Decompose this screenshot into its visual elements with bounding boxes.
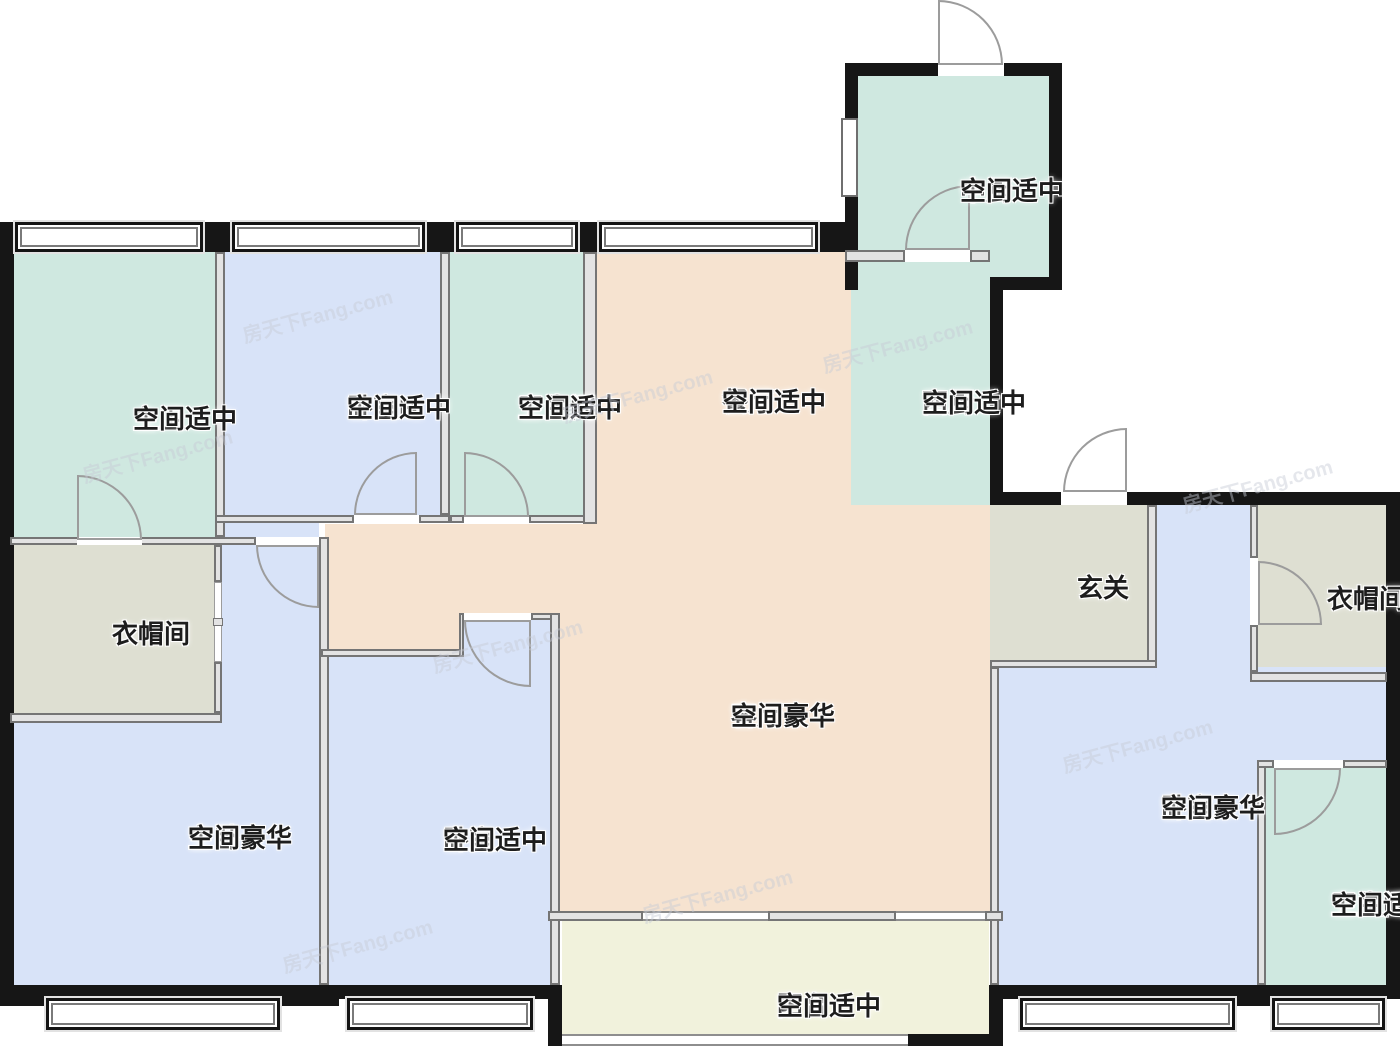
window-balcony-front: [562, 1034, 908, 1046]
room-western-kitchen: [851, 262, 990, 505]
iwall-balcony-div-2: [768, 911, 896, 921]
opening-bedroom: [464, 613, 531, 620]
iwall-cloakrooma-left-2: [1250, 625, 1258, 672]
iwall-cloakroom-right-1: [214, 545, 222, 582]
iwall-balcony-div-1: [548, 911, 643, 921]
wall-left: [0, 225, 14, 997]
room-bedroom-main: [329, 657, 551, 985]
wall-balcony-right: [989, 985, 1003, 1046]
floor-plan: 主卫空间适中 卧室B空间适中 卫生间空间适中 餐厅空间适中 中厨空间适中 西厨空…: [0, 0, 1400, 1053]
iwall-bedroom-top-a: [321, 649, 464, 657]
wall-bottom-chunk-1: [0, 985, 46, 1006]
wall-bottom-chunk-3: [1235, 985, 1272, 1006]
door-arc-kitchen-top: [938, 0, 1003, 65]
sliding-door-tick: [213, 618, 223, 626]
window-bathroom: [456, 222, 578, 252]
window-master-bed: [46, 998, 280, 1030]
window-dining: [599, 222, 818, 252]
iwall-bath-right: [583, 252, 597, 524]
window-bedroom: [347, 998, 533, 1030]
iwall-bedroomb-bath-div: [440, 252, 450, 515]
window-bedroom-b: [232, 222, 425, 252]
door-arc-entry: [1063, 428, 1127, 492]
opening-entry-door: [1061, 492, 1127, 505]
wall-rightwing-top: [993, 492, 1400, 505]
opening-corridor: [256, 537, 319, 545]
iwall-entry-bottom: [990, 660, 1157, 668]
room-living-strip: [597, 505, 990, 524]
window-balcony-div-1: [643, 911, 768, 921]
wall-bottom-right: [1003, 985, 1400, 999]
window-bathroom-a: [1272, 998, 1385, 1030]
iwall-bedroomb-bottom-1: [215, 515, 354, 523]
window-balcony-div-2: [896, 911, 985, 921]
opening-kitchen-west: [905, 250, 970, 262]
iwall-bathrooma-top-1: [1257, 760, 1274, 768]
iwall-bedroomb-bottom-2: [419, 515, 450, 523]
window-kitchen-left: [841, 118, 858, 197]
wall-balcony-bottom: [908, 1034, 989, 1046]
room-balcony: [562, 921, 989, 1040]
wall-balcony-left: [548, 985, 562, 1046]
window-bedroom-a: [1020, 998, 1235, 1030]
opening-bathroom-a: [1274, 760, 1343, 768]
iwall-cloakrooma-left-1: [1250, 505, 1258, 558]
iwall-bathrooma-top-2: [1343, 760, 1387, 768]
iwall-masterbath-right: [215, 252, 225, 537]
iwall-bath-bottom-1: [450, 515, 464, 523]
wall-bottom-chunk-2: [281, 985, 339, 1006]
iwall-corridor-hinge: [319, 537, 329, 985]
window-master-bath: [15, 222, 203, 252]
iwall-entry-right: [1147, 505, 1157, 668]
iwall-cloakroom-bottom: [10, 713, 222, 723]
iwall-cloakrooma-bottom: [1250, 672, 1387, 682]
iwall-living-bedrooma: [990, 667, 999, 985]
room-corridor-a: [1157, 505, 1250, 680]
opening-bedroom-b: [354, 515, 419, 523]
opening-cloakroom-a: [1250, 558, 1258, 625]
iwall-bedroom-right: [550, 613, 560, 985]
room-dining: [597, 252, 851, 505]
iwall-kitchen-west-1: [845, 250, 905, 262]
iwall-balcony-div-3: [985, 911, 1003, 921]
iwall-cloakroom-right-2: [214, 662, 222, 713]
iwall-kitchen-west-2: [970, 250, 990, 262]
